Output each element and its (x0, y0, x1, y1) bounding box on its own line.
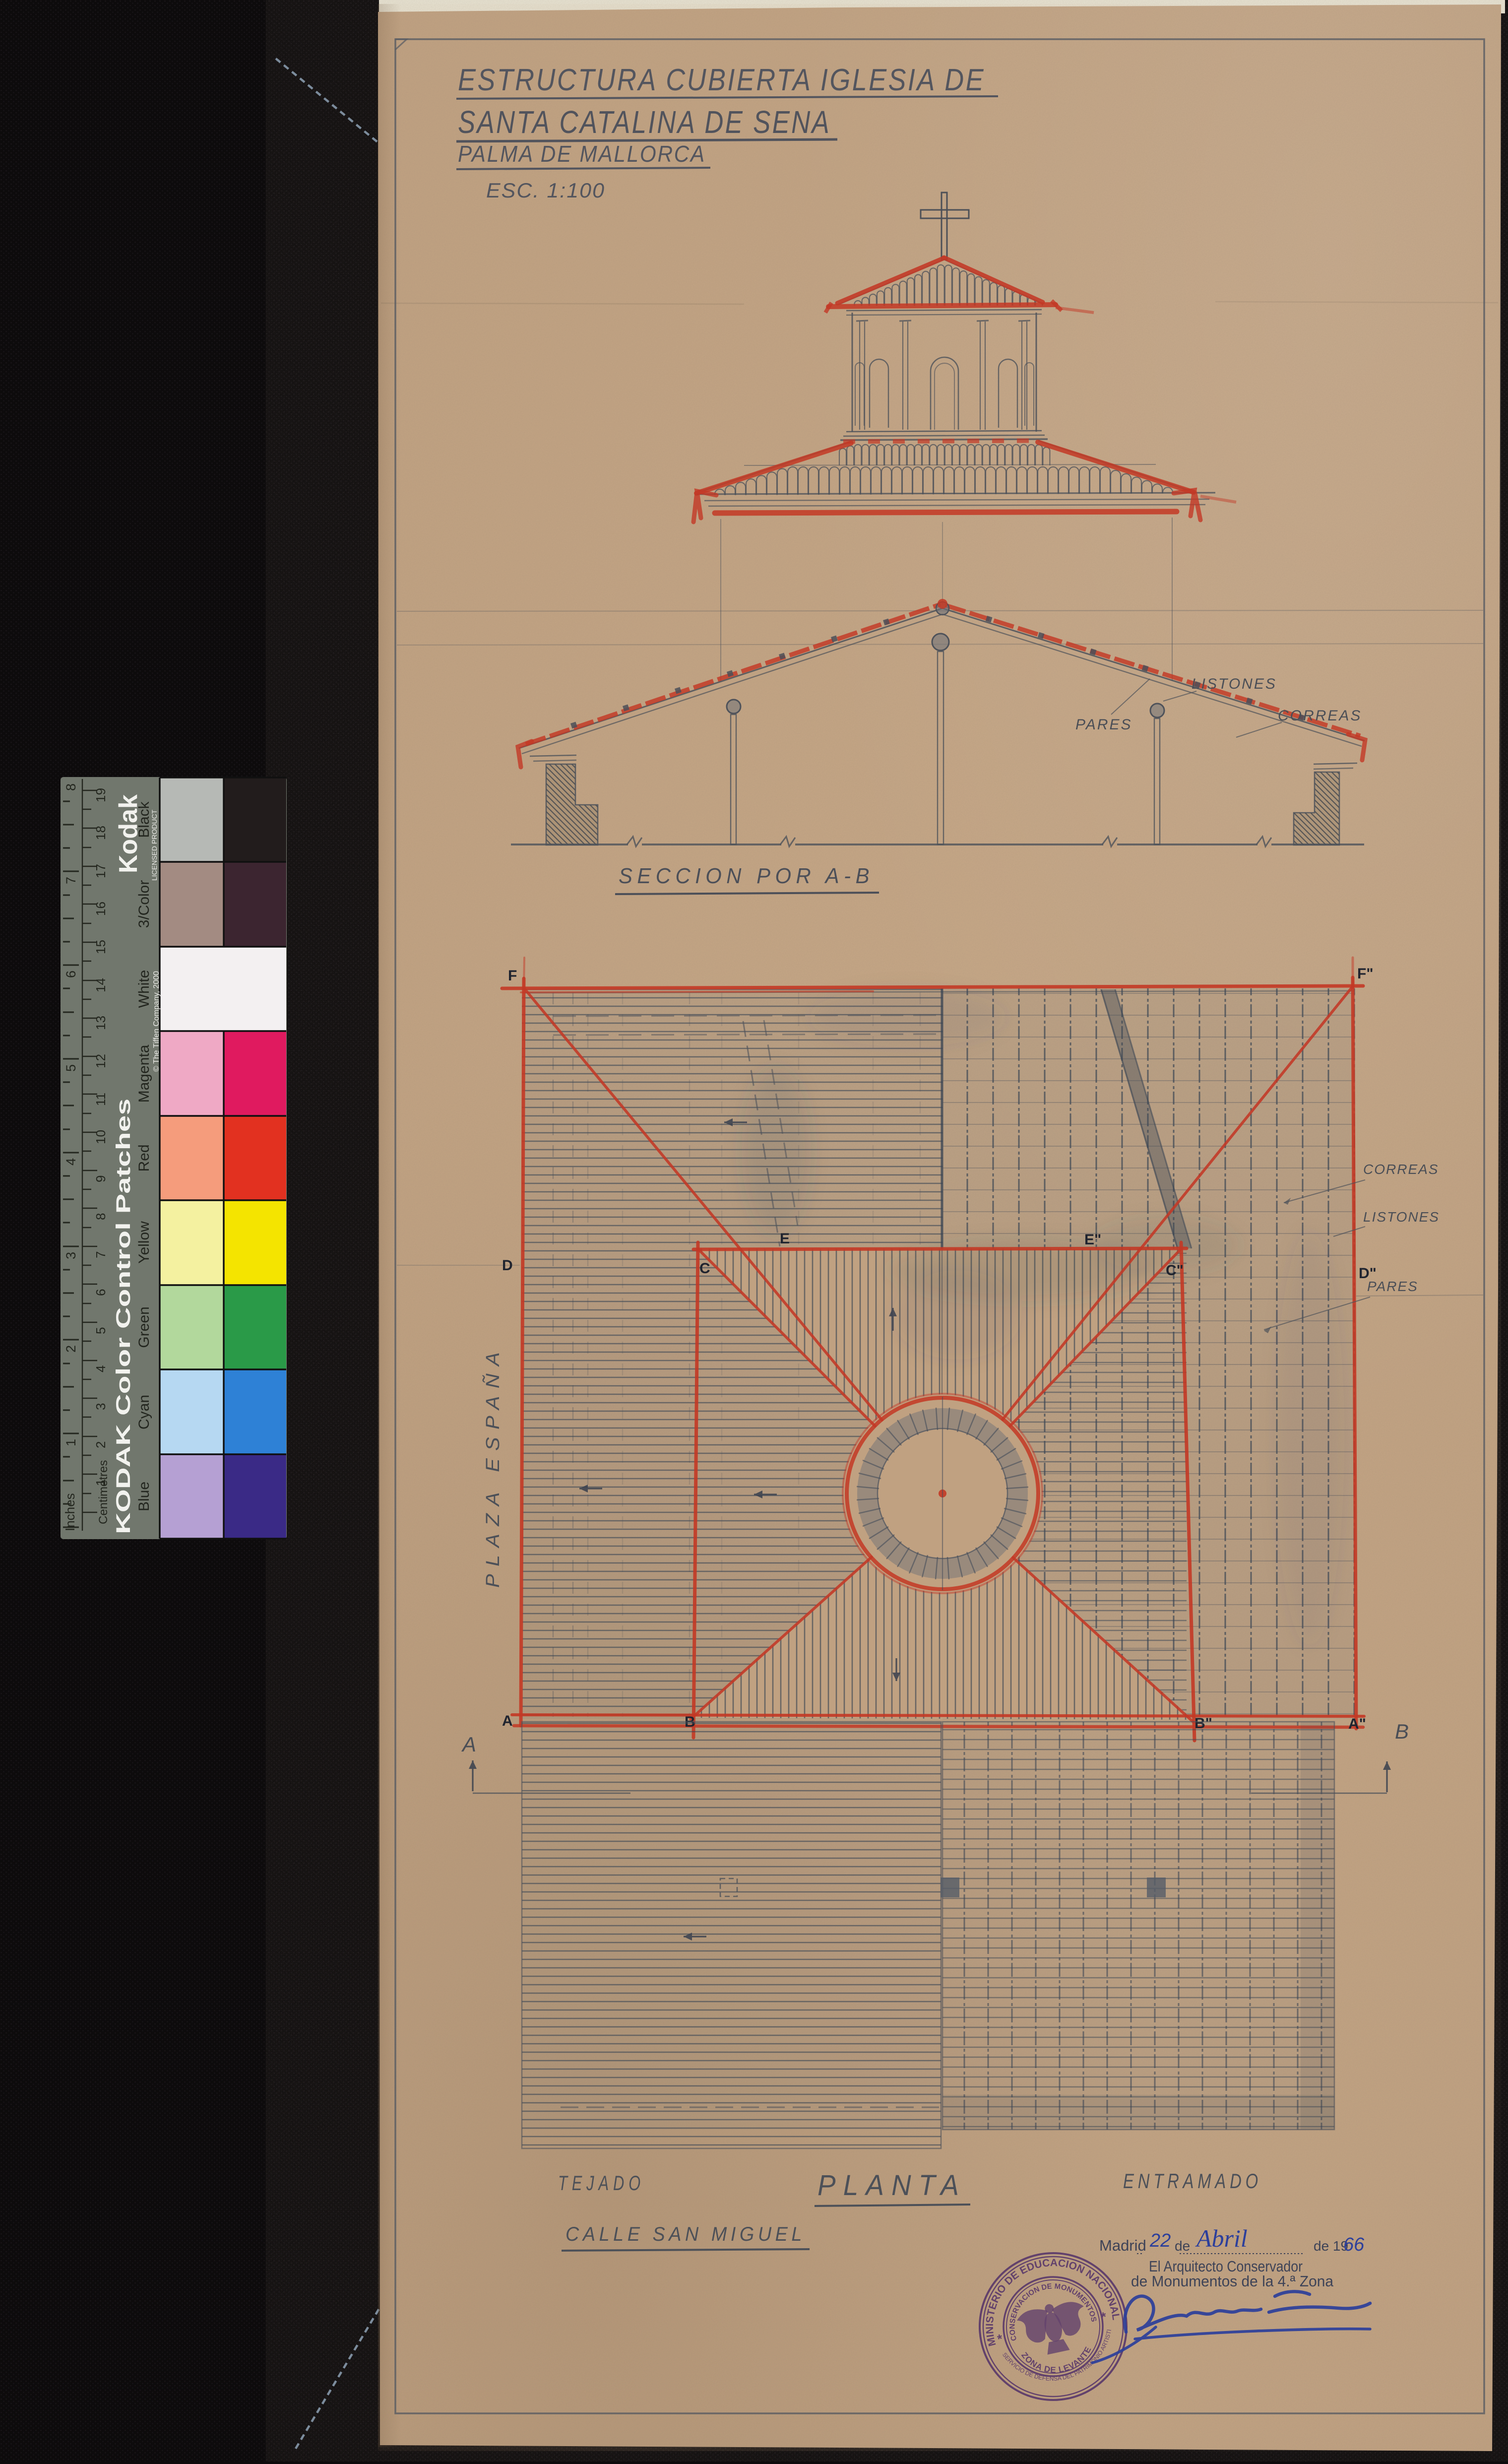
svg-text:3: 3 (63, 1252, 78, 1259)
svg-text:5: 5 (63, 1064, 78, 1072)
svg-text:14: 14 (93, 978, 108, 992)
svg-text:13: 13 (93, 1016, 108, 1030)
svg-text:19: 19 (93, 788, 108, 802)
svg-text:D: D (502, 1257, 513, 1274)
svg-text:CORREAS: CORREAS (1363, 1162, 1439, 1177)
svg-text:de: de (1175, 2238, 1190, 2254)
svg-text:A: A (502, 1713, 513, 1729)
svg-text:6: 6 (93, 1289, 108, 1296)
svg-text:F": F" (1357, 966, 1374, 982)
svg-text:de Monumentos de la 4.ª Zona: de Monumentos de la 4.ª Zona (1131, 2272, 1334, 2290)
svg-text:A: A (461, 1733, 476, 1756)
svg-text:3/Color: 3/Color (136, 880, 152, 928)
svg-text:SECCION POR A-B: SECCION POR A-B (619, 864, 874, 888)
svg-text:2: 2 (93, 1441, 108, 1448)
svg-text:F: F (508, 968, 517, 984)
svg-text:CORREAS: CORREAS (1278, 708, 1362, 724)
svg-text:KODAK Color Control Patches: KODAK Color Control Patches (113, 1099, 134, 1534)
svg-text:PLANTA: PLANTA (817, 2169, 966, 2202)
svg-text:PALMA DE MALLORCA: PALMA DE MALLORCA (458, 141, 706, 167)
svg-text:TEJADO: TEJADO (558, 2171, 645, 2195)
svg-text:7: 7 (93, 1251, 108, 1258)
svg-text:8: 8 (63, 783, 78, 791)
svg-text:8: 8 (93, 1213, 108, 1220)
svg-text:17: 17 (93, 864, 108, 878)
svg-text:1: 1 (63, 1439, 78, 1446)
svg-text:PARES: PARES (1367, 1279, 1418, 1294)
svg-text:3: 3 (93, 1403, 108, 1410)
svg-text:SANTA CATALINA DE SENA: SANTA CATALINA DE SENA (458, 104, 831, 140)
svg-text:ESC. 1:100: ESC. 1:100 (486, 179, 605, 202)
svg-text:C": C" (1166, 1262, 1184, 1279)
svg-text:Madrid: Madrid (1099, 2237, 1146, 2254)
svg-text:Magenta: Magenta (136, 1044, 152, 1102)
svg-text:LISTONES: LISTONES (1363, 1209, 1440, 1225)
svg-text:22: 22 (1149, 2230, 1171, 2251)
svg-text:E: E (780, 1231, 790, 1247)
svg-text:6: 6 (63, 971, 78, 978)
svg-text:Centimetres: Centimetres (97, 1460, 110, 1524)
svg-text:Yellow: Yellow (136, 1221, 152, 1264)
svg-text:CALLE SAN MIGUEL: CALLE SAN MIGUEL (565, 2223, 806, 2245)
svg-text:Cyan: Cyan (136, 1395, 152, 1429)
svg-text:2: 2 (63, 1345, 78, 1353)
svg-text:PLAZA ESPAÑA: PLAZA ESPAÑA (482, 1345, 503, 1588)
svg-text:A": A" (1348, 1716, 1366, 1732)
svg-text:PARES: PARES (1075, 716, 1132, 733)
svg-text:LISTONES: LISTONES (1192, 676, 1277, 692)
svg-text:7: 7 (63, 877, 78, 884)
svg-text:66: 66 (1343, 2234, 1365, 2255)
svg-text:9: 9 (93, 1175, 108, 1182)
svg-text:Red: Red (136, 1144, 152, 1171)
svg-text:5: 5 (93, 1327, 108, 1334)
svg-text:C: C (699, 1260, 710, 1277)
svg-text:Inches: Inches (63, 1493, 77, 1531)
svg-text:4: 4 (93, 1365, 108, 1372)
svg-text:11: 11 (93, 1093, 108, 1106)
svg-text:ESTRUCTURA CUBIERTA IGLESIA DE: ESTRUCTURA CUBIERTA IGLESIA DE (458, 63, 985, 97)
svg-text:Black: Black (136, 801, 152, 838)
svg-text:Green: Green (136, 1306, 152, 1348)
svg-text:Abril: Abril (1195, 2224, 1248, 2252)
svg-text:18: 18 (93, 826, 108, 840)
svg-text:10: 10 (93, 1130, 108, 1144)
svg-text:Blue: Blue (136, 1482, 152, 1511)
svg-text:B: B (1395, 1720, 1409, 1743)
svg-text:15: 15 (93, 940, 108, 954)
svg-text:White: White (136, 970, 152, 1008)
svg-text:4: 4 (63, 1158, 78, 1166)
svg-text:12: 12 (93, 1054, 108, 1068)
svg-text:© The Tiffen Company, 2000: © The Tiffen Company, 2000 (152, 971, 161, 1072)
svg-text:16: 16 (93, 902, 108, 916)
svg-text:ENTRAMADO: ENTRAMADO (1123, 2169, 1262, 2193)
svg-text:E": E" (1084, 1232, 1101, 1248)
